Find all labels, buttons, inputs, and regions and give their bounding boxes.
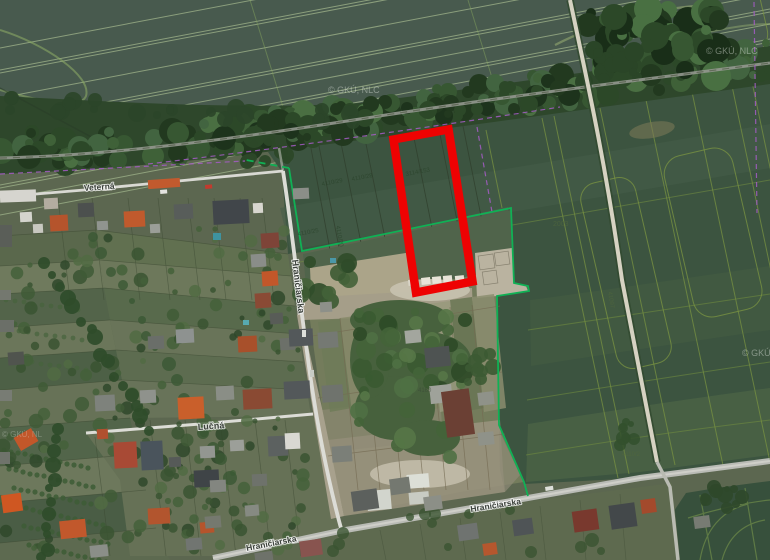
svg-text:Lučná: Lučná (197, 420, 225, 432)
svg-text:4110/2: 4110/2 (622, 452, 641, 458)
svg-text:© GKÚ, NLC: © GKÚ, NLC (328, 85, 380, 95)
svg-text:© GKÚ: © GKÚ (742, 348, 770, 358)
svg-text:© GKÚ, NL: © GKÚ, NL (2, 430, 43, 439)
svg-text:4160: 4160 (418, 388, 432, 394)
svg-text:© GKÚ, NLC: © GKÚ, NLC (706, 46, 758, 56)
svg-text:2003: 2003 (553, 221, 569, 228)
